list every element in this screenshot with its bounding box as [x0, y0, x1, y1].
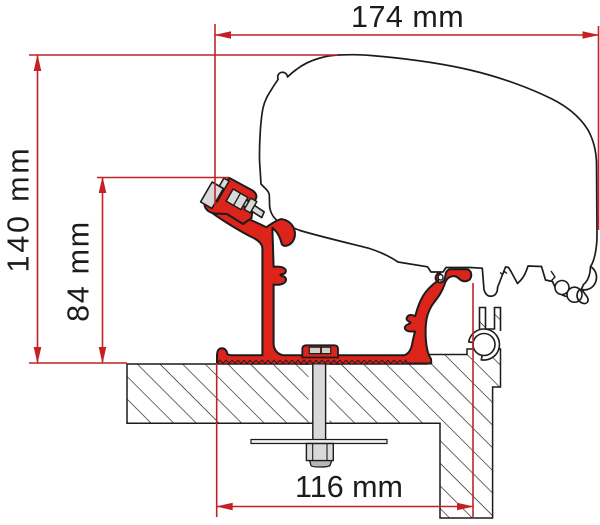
svg-text:174 mm: 174 mm: [351, 0, 464, 34]
svg-text:84 mm: 84 mm: [61, 220, 95, 322]
svg-text:140 mm: 140 mm: [2, 146, 36, 273]
svg-text:116 mm: 116 mm: [295, 470, 403, 504]
